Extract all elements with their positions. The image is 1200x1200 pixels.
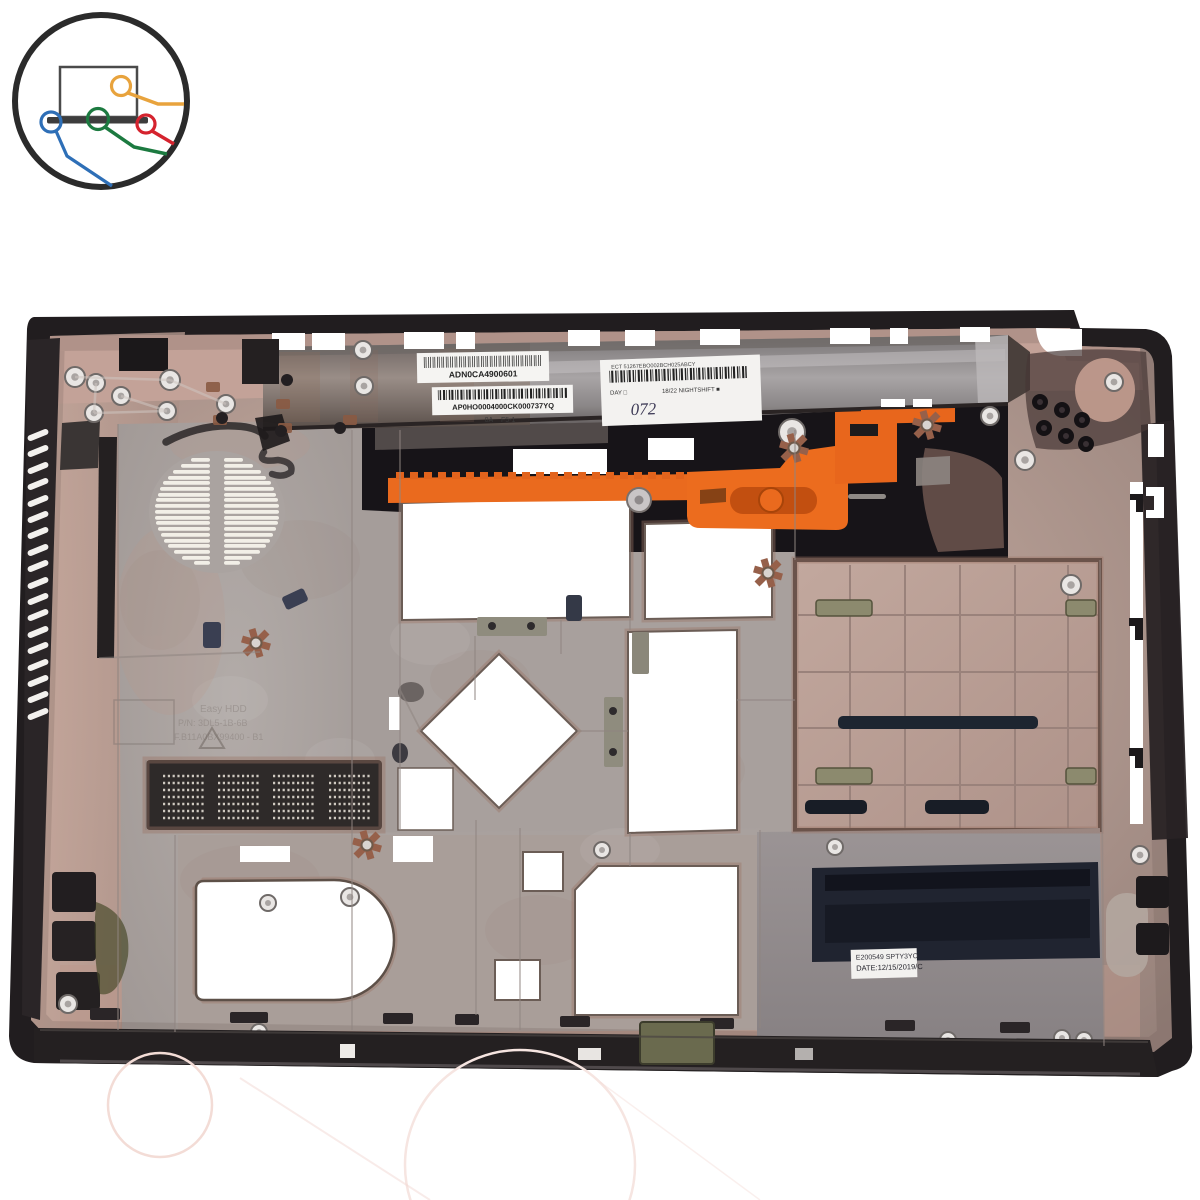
svg-text:Easy HDD: Easy HDD xyxy=(200,704,247,715)
svg-text:072: 072 xyxy=(630,399,657,419)
svg-text:0A F5-1: 0A F5-1 xyxy=(485,417,516,424)
svg-text:DATE:12/15/2019/C: DATE:12/15/2019/C xyxy=(856,962,923,973)
svg-text:P/N: 3DL5-1B-6B: P/N: 3DL5-1B-6B xyxy=(178,718,248,728)
svg-text:ADN0CA4900601: ADN0CA4900601 xyxy=(449,368,518,379)
svg-text:DAY □: DAY □ xyxy=(610,390,628,397)
svg-text:AP0HO0004000CK000737YQ: AP0HO0004000CK000737YQ xyxy=(452,401,554,412)
